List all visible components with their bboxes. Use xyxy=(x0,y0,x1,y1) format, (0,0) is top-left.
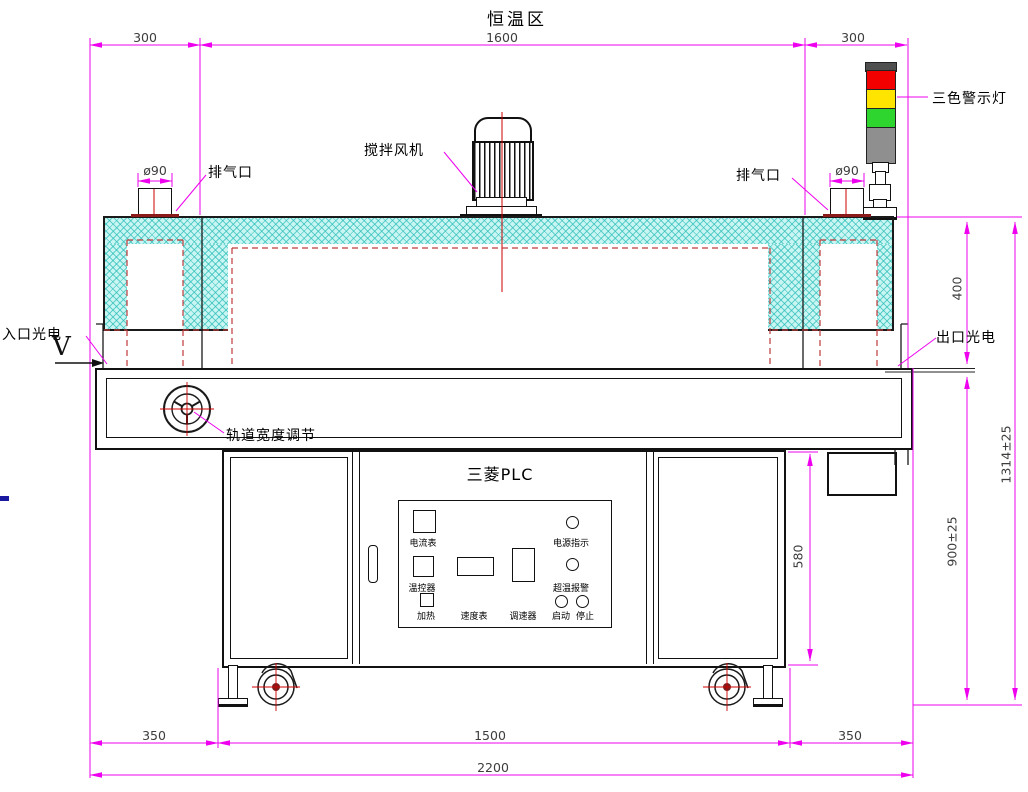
stop-button xyxy=(576,595,589,608)
exhaust-port-left xyxy=(138,188,172,216)
heating-switch xyxy=(420,593,434,607)
cabinet-divider-right xyxy=(646,450,654,664)
door-handle xyxy=(368,545,378,583)
fan-motor-base-plate xyxy=(460,214,542,217)
dim-overall-height-1314: 1314±25 xyxy=(999,422,1014,488)
stray-blue-mark xyxy=(0,496,9,501)
warning-light-body xyxy=(866,127,896,164)
dim-table-height-900: 900±25 xyxy=(945,512,960,572)
speed-meter-display xyxy=(457,557,494,576)
engineering-drawing-canvas: 恒温区 300 1600 300 ø90 ø90 排气口 排气口 搅拌风机 三色… xyxy=(0,0,1028,792)
exhaust-port-right xyxy=(830,188,864,216)
label-power-indicator: 电源指示 xyxy=(545,536,597,549)
leveling-foot-left-rod xyxy=(228,665,238,700)
page-title: 恒温区 xyxy=(462,5,572,30)
drive-housing-box xyxy=(827,452,897,496)
warning-light-yellow-lens xyxy=(866,89,896,110)
ammeter-display xyxy=(413,510,436,533)
label-ammeter: 电流表 xyxy=(401,536,445,549)
dim-top-right-300: 300 xyxy=(823,30,883,45)
right-exhaust-channel xyxy=(820,244,877,330)
label-warning-light: 三色警示灯 xyxy=(932,88,1007,108)
dim-bottom-right-350: 350 xyxy=(820,728,880,743)
leveling-foot-right-pad xyxy=(753,698,783,707)
overtemp-alarm-lamp xyxy=(566,558,579,571)
temp-controller-display xyxy=(413,556,434,577)
warning-light-red-lens xyxy=(866,70,896,91)
label-speed-meter: 速度表 xyxy=(452,609,496,622)
dim-bottom-1500: 1500 xyxy=(460,728,520,743)
label-track-adjust: 轨道宽度调节 xyxy=(226,425,316,445)
label-exhaust-left: 排气口 xyxy=(208,162,253,182)
speed-regulator-knob xyxy=(512,548,535,582)
dim-port-left: ø90 xyxy=(135,163,175,178)
label-direction-v: V xyxy=(52,332,71,362)
dim-total-2200: 2200 xyxy=(463,760,523,775)
label-stir-fan: 搅拌风机 xyxy=(364,140,424,160)
start-button xyxy=(555,595,568,608)
warning-light-base xyxy=(863,207,897,220)
label-temp-controller: 温控器 xyxy=(400,581,444,594)
warning-light-green-lens xyxy=(866,108,896,129)
oven-top-insulation xyxy=(104,217,893,244)
cabinet-left-panel xyxy=(230,457,348,659)
label-stop: 停止 xyxy=(571,609,599,622)
dim-top-left-300: 300 xyxy=(115,30,175,45)
label-plc: 三菱PLC xyxy=(440,461,560,485)
power-indicator-lamp xyxy=(566,516,579,529)
label-outlet-sensor: 出口光电 xyxy=(936,327,996,347)
dim-top-1600: 1600 xyxy=(472,30,532,45)
cabinet-divider-left xyxy=(352,450,360,664)
label-speed-regulator: 调速器 xyxy=(501,609,545,622)
label-heating: 加热 xyxy=(406,609,446,622)
dim-oven-height-400: 400 xyxy=(950,259,965,319)
cabinet-right-panel xyxy=(658,457,778,659)
fan-motor-finned-body xyxy=(472,141,534,201)
dim-cabinet-height-580: 580 xyxy=(791,527,806,587)
dim-port-right: ø90 xyxy=(827,163,867,178)
leveling-foot-left-pad xyxy=(218,698,248,707)
left-exhaust-channel xyxy=(127,244,183,330)
label-overtemp-alarm: 超温报警 xyxy=(545,581,597,594)
label-exhaust-right: 排气口 xyxy=(736,165,781,185)
leveling-foot-right-rod xyxy=(763,665,773,700)
dim-bottom-left-350: 350 xyxy=(124,728,184,743)
